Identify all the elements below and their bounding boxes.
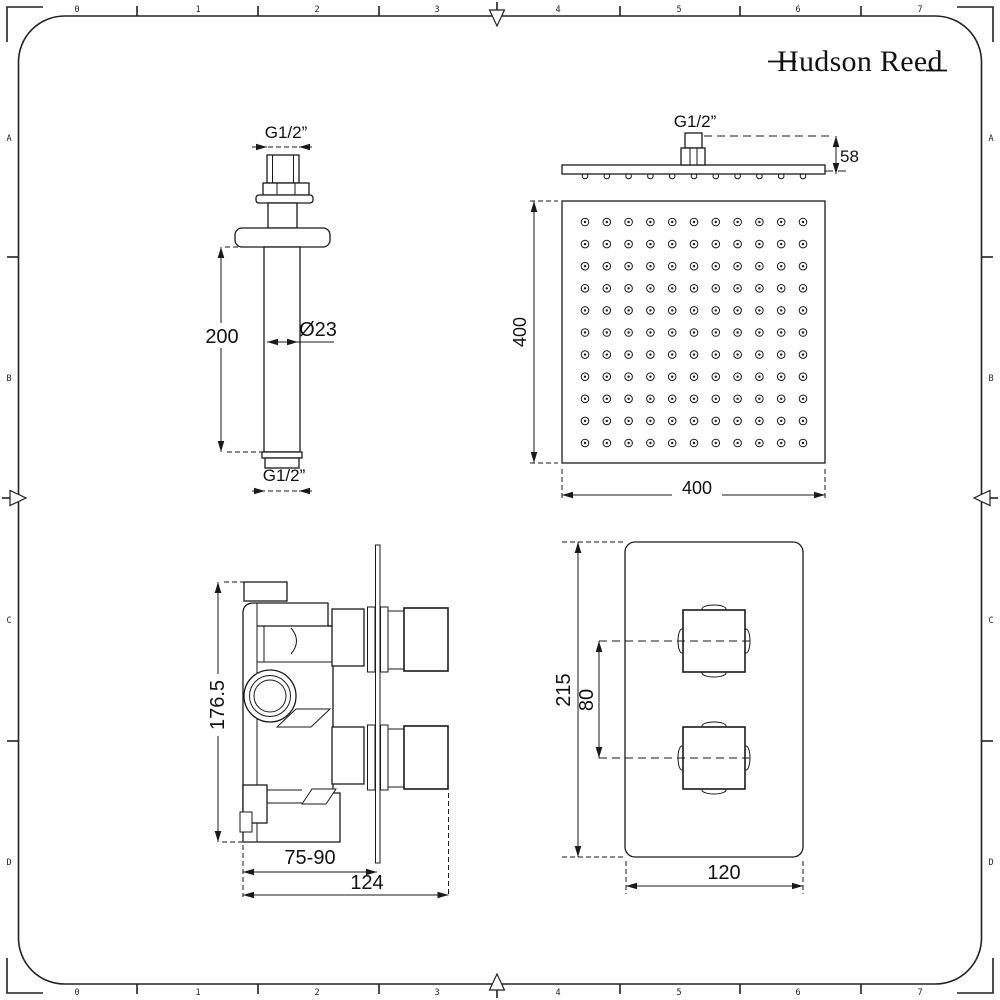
valve-front-lower-knob bbox=[678, 722, 750, 794]
head-side-plate bbox=[562, 165, 825, 174]
dim-label-valve-front-height: 215 bbox=[553, 673, 575, 706]
centering-mark-left bbox=[2, 491, 26, 506]
drawing-valve-front: 80 215 120 bbox=[553, 542, 803, 894]
arm-upper-stem bbox=[268, 203, 297, 228]
ruler-number: 0 bbox=[74, 5, 79, 15]
sheet-border bbox=[19, 16, 982, 984]
technical-drawing-canvas: 0 1 2 3 4 5 6 7 0 1 2 3 4 5 6 7 A B C D bbox=[0, 0, 1000, 1000]
valve-height-dim: 176.5 bbox=[206, 582, 247, 842]
dim-label-arm-top-thread: G1/2” bbox=[265, 123, 308, 142]
drawing-sheet: 0 1 2 3 4 5 6 7 0 1 2 3 4 5 6 7 A B C D bbox=[0, 0, 1000, 1000]
arm-hex-nut bbox=[263, 183, 309, 195]
arm-length-dim: 200 bbox=[203, 247, 262, 452]
dim-label-arm-length: 200 bbox=[205, 326, 238, 348]
valve-lower-stem bbox=[332, 727, 364, 784]
head-face-height-dim: 400 bbox=[510, 201, 558, 463]
arm-washer bbox=[256, 195, 313, 203]
arm-drop-pipe bbox=[264, 247, 300, 452]
ruler-number: 4 bbox=[555, 988, 560, 998]
dim-label-arm-bottom-thread: G1/2” bbox=[263, 466, 306, 485]
ruler-number: 6 bbox=[795, 988, 800, 998]
valve-front-upper-knob bbox=[678, 605, 750, 677]
ruler-letter: B bbox=[6, 374, 11, 384]
valve-side-body bbox=[240, 582, 340, 842]
ruler-number: 7 bbox=[917, 988, 922, 998]
valve-upper-knob bbox=[404, 608, 448, 671]
valve-side-port-outer bbox=[244, 670, 296, 722]
ruler-letter: C bbox=[988, 616, 993, 626]
drawing-valve-side: 176.5 75-90 124 bbox=[206, 545, 449, 897]
dim-label-valve-depth-range: 75-90 bbox=[284, 847, 335, 869]
centering-mark-top bbox=[490, 2, 505, 26]
valve-top-port bbox=[244, 582, 287, 601]
dim-label-head-height: 58 bbox=[840, 147, 859, 166]
ruler-number: 3 bbox=[434, 988, 439, 998]
brand-logo-text: Hudson Reed bbox=[777, 45, 943, 78]
dim-label-head-thread: G1/2” bbox=[674, 112, 717, 131]
dim-label-valve-height: 176.5 bbox=[207, 680, 229, 730]
ruler-number: 6 bbox=[795, 5, 800, 15]
ruler-number: 3 bbox=[434, 5, 439, 15]
ruler-number: 4 bbox=[555, 5, 560, 15]
ruler-letter: D bbox=[988, 858, 993, 868]
centering-mark-bottom bbox=[490, 974, 505, 998]
dim-label-knob-spacing: 80 bbox=[576, 689, 598, 711]
valve-front-spacing-dim: 80 bbox=[576, 641, 599, 758]
arm-bottom-collar bbox=[262, 452, 302, 458]
head-connector-base bbox=[681, 148, 705, 165]
ruler-number: 5 bbox=[676, 5, 681, 15]
ruler-letter: A bbox=[988, 134, 993, 144]
ruler-number: 0 bbox=[74, 988, 79, 998]
dim-label-valve-depth-total: 124 bbox=[350, 872, 383, 894]
dim-label-valve-front-width: 120 bbox=[707, 862, 740, 884]
drawing-head-face: 400 400 bbox=[510, 201, 825, 501]
drawing-head-side: G1/2” 58 bbox=[562, 112, 859, 179]
head-connector-top bbox=[685, 133, 702, 148]
arm-threaded-tail bbox=[267, 155, 299, 183]
ruler-letter: B bbox=[988, 374, 993, 384]
valve-front-width-dim: 120 bbox=[626, 861, 803, 894]
arm-ceiling-flange bbox=[235, 228, 330, 247]
ruler-number: 1 bbox=[195, 988, 200, 998]
dim-label-arm-diameter: Ø23 bbox=[299, 319, 337, 341]
valve-lower-knob bbox=[404, 726, 448, 789]
ruler-letter: A bbox=[6, 134, 11, 144]
ruler-number: 1 bbox=[195, 5, 200, 15]
valve-front-plate bbox=[625, 542, 803, 857]
centering-mark-right bbox=[974, 491, 998, 506]
valve-upper-stem bbox=[332, 609, 364, 666]
drawing-ceiling-arm: G1/2” 200 bbox=[203, 123, 337, 491]
valve-lower-handle bbox=[332, 725, 448, 790]
dim-label-head-face-height: 400 bbox=[510, 317, 530, 347]
ruler-number: 7 bbox=[917, 5, 922, 15]
valve-upper-handle bbox=[332, 607, 448, 672]
brand-logo: Hudson Reed bbox=[768, 45, 947, 78]
ruler-letter: C bbox=[6, 616, 11, 626]
head-face-width-dim: 400 bbox=[562, 469, 825, 501]
valve-wall-plate bbox=[376, 545, 381, 863]
ruler-number: 2 bbox=[314, 5, 319, 15]
ruler-letter: D bbox=[6, 858, 11, 868]
ruler-number: 2 bbox=[314, 988, 319, 998]
arm-body bbox=[235, 155, 330, 468]
ruler-number: 5 bbox=[676, 988, 681, 998]
dim-label-head-face-width: 400 bbox=[682, 478, 712, 498]
